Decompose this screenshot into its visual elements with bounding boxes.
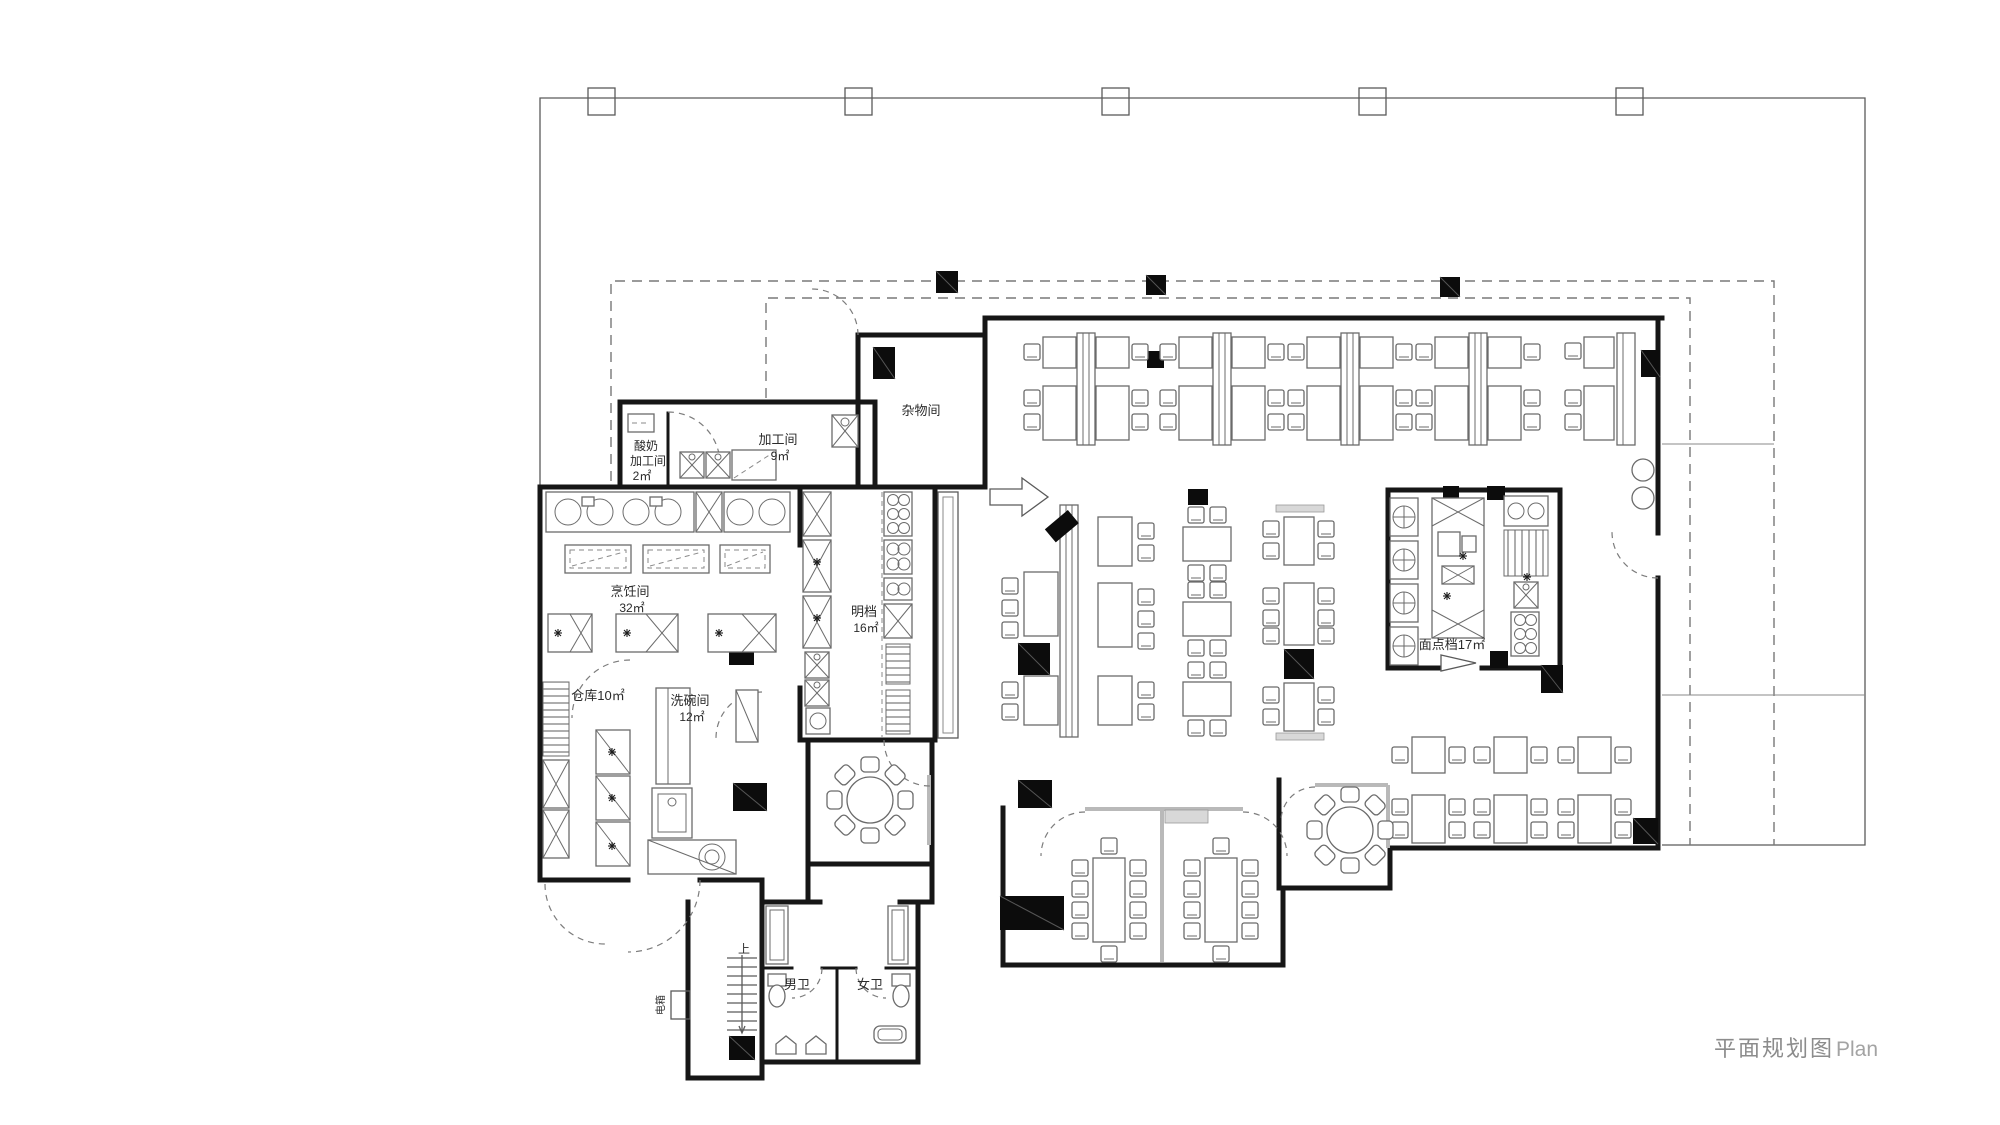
column xyxy=(1188,489,1208,505)
hood xyxy=(616,614,678,652)
round-table-room-1 xyxy=(827,757,913,843)
label-yogurt-1: 酸奶 xyxy=(634,438,658,453)
column xyxy=(1641,350,1660,377)
label-yogurt-3: 2㎡ xyxy=(633,469,652,483)
floor-plan-page: 酸奶 加工间 2㎡ 加工间 9㎡ 烹饪间 32㎡ 仓库10㎡ 洗碗间 12㎡ 明… xyxy=(0,0,2000,1125)
column xyxy=(1146,275,1166,295)
label-sundry: 杂物间 xyxy=(901,403,940,418)
private-rooms xyxy=(1072,810,1258,962)
hood xyxy=(548,614,592,652)
label-pastry: 面点档17㎡ xyxy=(1419,637,1485,652)
title-zh: 平面规划图 xyxy=(1714,1036,1834,1061)
bottom-right-seating xyxy=(1392,737,1631,843)
label-open-counter-area: 16㎡ xyxy=(853,621,878,635)
column xyxy=(729,1036,755,1060)
column xyxy=(733,783,767,811)
label-electric-box: 电箱 xyxy=(654,995,667,1015)
column xyxy=(1490,651,1508,668)
stool xyxy=(1632,487,1654,509)
urinal xyxy=(776,1036,796,1054)
booth-seating-row xyxy=(1024,333,1654,509)
label-processing-area: 9㎡ xyxy=(771,449,790,463)
label-womens-toilet: 女卫 xyxy=(857,977,883,992)
round-table-room-2 xyxy=(1307,787,1393,873)
column xyxy=(1440,277,1460,297)
column xyxy=(1633,818,1658,844)
toilet xyxy=(892,974,910,1007)
label-mens-toilet: 男卫 xyxy=(784,977,810,992)
middle-dining xyxy=(1002,505,1334,740)
storage-equipment xyxy=(543,682,630,866)
label-cooking-area: 32㎡ xyxy=(619,601,644,615)
prep-table xyxy=(720,545,770,573)
label-cooking: 烹饪间 xyxy=(610,584,649,599)
stool xyxy=(1632,459,1654,481)
title-en: Plan xyxy=(1836,1038,1878,1061)
floor-plan-svg: 酸奶 加工间 2㎡ 加工间 9㎡ 烹饪间 32㎡ 仓库10㎡ 洗碗间 12㎡ 明… xyxy=(0,0,2000,1125)
column xyxy=(873,347,895,379)
label-dishwashing-area: 12㎡ xyxy=(679,710,704,724)
label-yogurt-2: 加工间 xyxy=(630,454,666,468)
cooking-equipment xyxy=(546,492,790,652)
column xyxy=(1018,780,1052,808)
processing-equipment xyxy=(628,414,858,480)
label-open-counter: 明档 xyxy=(851,604,877,619)
prep-table xyxy=(643,545,709,573)
stairs xyxy=(671,955,757,1033)
column xyxy=(1018,643,1050,675)
column xyxy=(936,271,958,293)
label-processing: 加工间 xyxy=(758,432,797,447)
prep-table xyxy=(565,545,631,573)
hood xyxy=(708,614,776,652)
label-stairs-up: 上 xyxy=(738,942,750,956)
label-dishwashing: 洗碗间 xyxy=(670,693,709,708)
urinal xyxy=(806,1036,826,1054)
booth-partial xyxy=(1565,333,1635,445)
column xyxy=(1284,649,1314,679)
entry-arrow xyxy=(990,478,1048,516)
drawing-title: 平面规划图 Plan xyxy=(1714,1036,1878,1061)
label-storage: 仓库10㎡ xyxy=(571,688,624,703)
column xyxy=(1487,486,1505,500)
column xyxy=(1000,896,1064,930)
column xyxy=(1541,665,1563,693)
